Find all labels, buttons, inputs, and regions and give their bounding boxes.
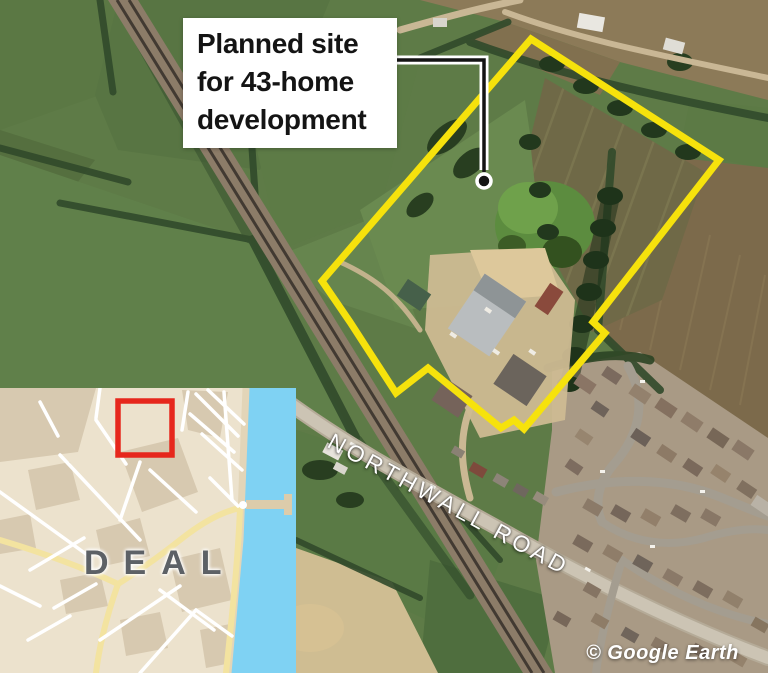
inset-town-label: DEAL — [84, 544, 237, 583]
callout-line-3: development — [197, 101, 391, 139]
inset-map — [0, 388, 296, 673]
imagery-attribution: © Google Earth — [586, 642, 739, 665]
callout-dot — [477, 174, 491, 188]
news-map-graphic: Planned site for 43-home development NOR… — [0, 0, 768, 673]
callout-line-1: Planned site — [197, 25, 391, 63]
callout-label-box: Planned site for 43-home development — [183, 18, 397, 148]
callout-line-2: for 43-home — [197, 63, 391, 101]
